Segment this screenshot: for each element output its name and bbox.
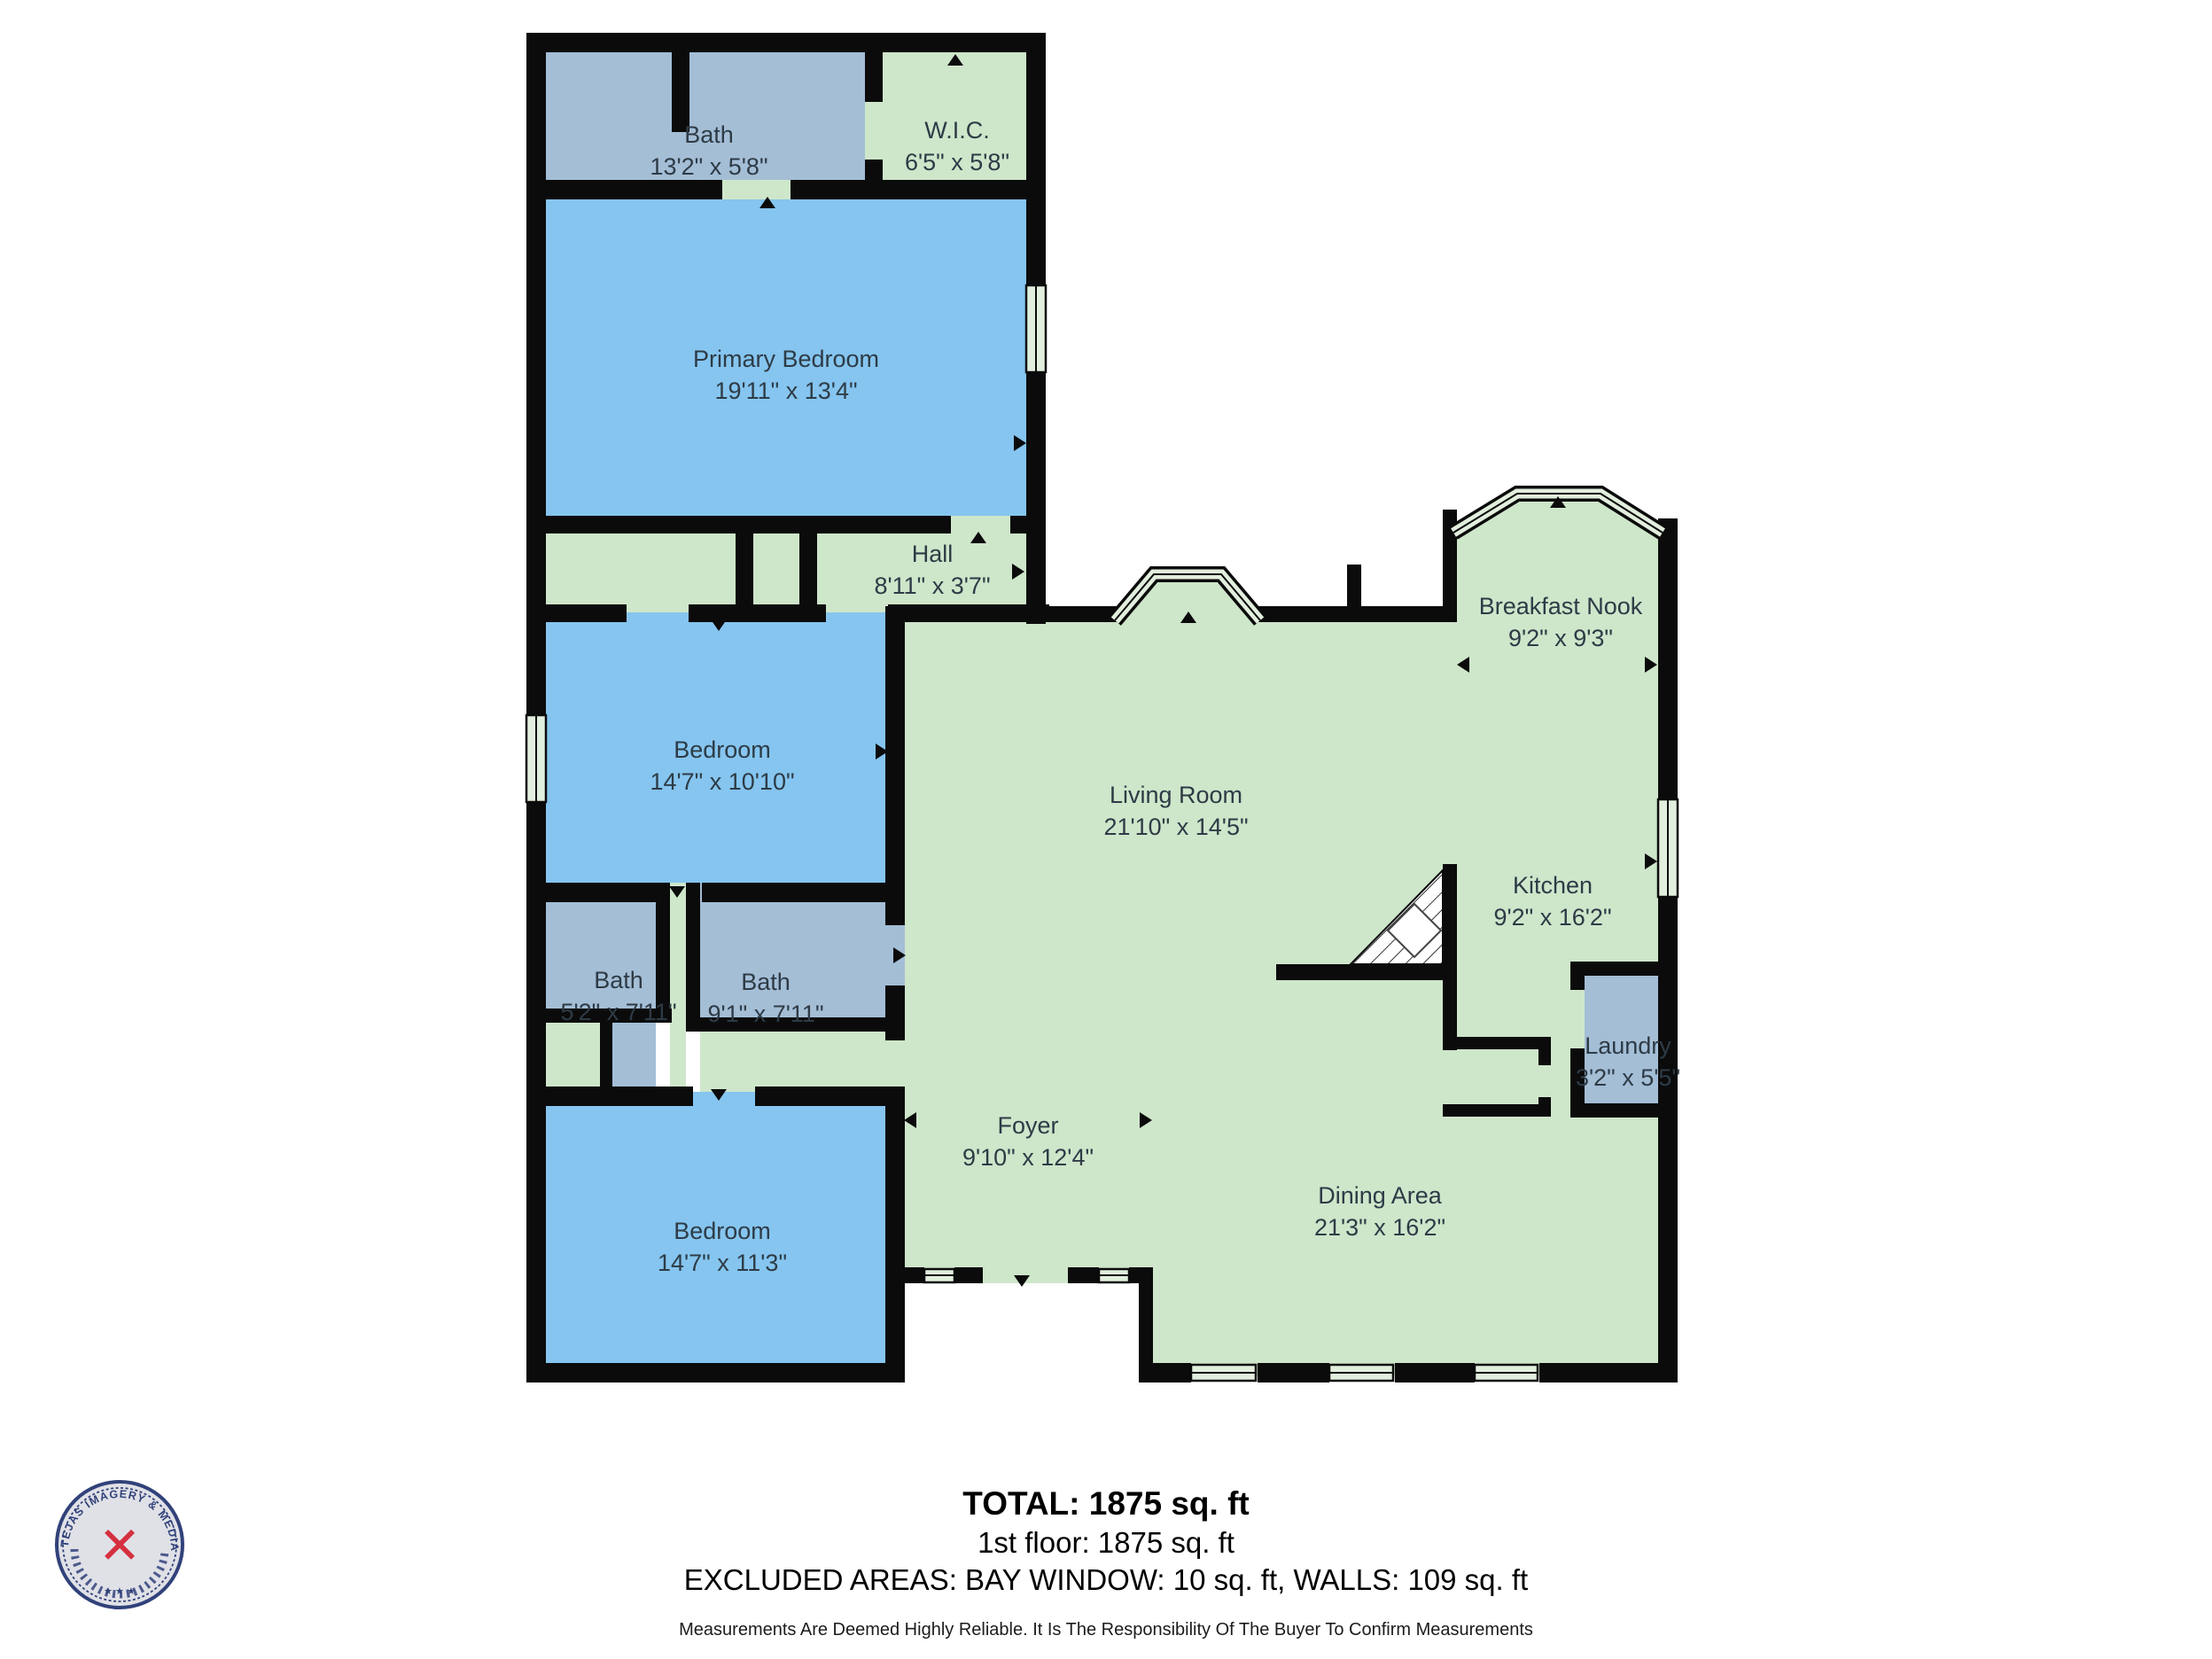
window-kitchen-right: [1658, 799, 1678, 897]
window-dining-2: [1329, 1365, 1393, 1381]
window-primary-right: [1026, 285, 1046, 372]
disclaimer-text: Measurements Are Deemed Highly Reliable.…: [0, 1620, 2212, 1640]
window-entry-right: [1099, 1269, 1129, 1282]
window-bedroom-left: [526, 715, 546, 802]
room-label-kitchen: Kitchen9'2" x 16'2": [1493, 869, 1611, 933]
room-label-laundry: Laundry3'2" x 5'5": [1576, 1030, 1680, 1094]
window-entry-left: [924, 1269, 954, 1282]
seal-stars: ★ ★ ★: [104, 1586, 136, 1597]
room-label-foyer: Foyer9'10" x 12'4": [962, 1110, 1094, 1173]
room-label-bath-small: Bath5'2" x 7'11": [560, 964, 676, 1028]
window-dining-3: [1475, 1365, 1538, 1381]
window-dining-1: [1191, 1365, 1256, 1381]
seal-x-icon: ✕: [98, 1517, 142, 1575]
summary-footer: TOTAL: 1875 sq. ft 1st floor: 1875 sq. f…: [0, 1485, 2212, 1640]
room-label-dining-area: Dining Area21'3" x 16'2": [1314, 1180, 1445, 1243]
room-label-bedroom-bottom: Bedroom14'7" x 11'3": [658, 1215, 787, 1279]
logo-seal: TEJAS IMAGERY & MEDIA SERVICES ✕ ★ ★ ★: [53, 1478, 186, 1611]
room-fills: [546, 51, 1660, 1375]
room-label-bedroom-mid: Bedroom14'7" x 10'10": [650, 734, 794, 798]
room-label-living-room: Living Room21'10" x 14'5": [1103, 779, 1248, 843]
room-label-wic: W.I.C.6'5" x 5'8": [905, 114, 1009, 178]
excluded-areas-text: EXCLUDED AREAS: BAY WINDOW: 10 sq. ft, W…: [0, 1563, 2212, 1597]
room-label-bath-hall: Bath9'1" x 7'11": [707, 966, 823, 1030]
first-floor-text: 1st floor: 1875 sq. ft: [0, 1526, 2212, 1560]
total-area-text: TOTAL: 1875 sq. ft: [0, 1485, 2212, 1523]
room-label-hall: Hall8'11" x 3'7": [874, 538, 990, 602]
room-label-bath-top: Bath13'2" x 5'8": [650, 119, 767, 183]
floorplan-page: Bath13'2" x 5'8" W.I.C.6'5" x 5'8" Prima…: [0, 0, 2212, 1659]
room-label-primary-bedroom: Primary Bedroom19'11" x 13'4": [693, 343, 879, 407]
room-label-breakfast-nook: Breakfast Nook9'2" x 9'3": [1479, 590, 1643, 654]
